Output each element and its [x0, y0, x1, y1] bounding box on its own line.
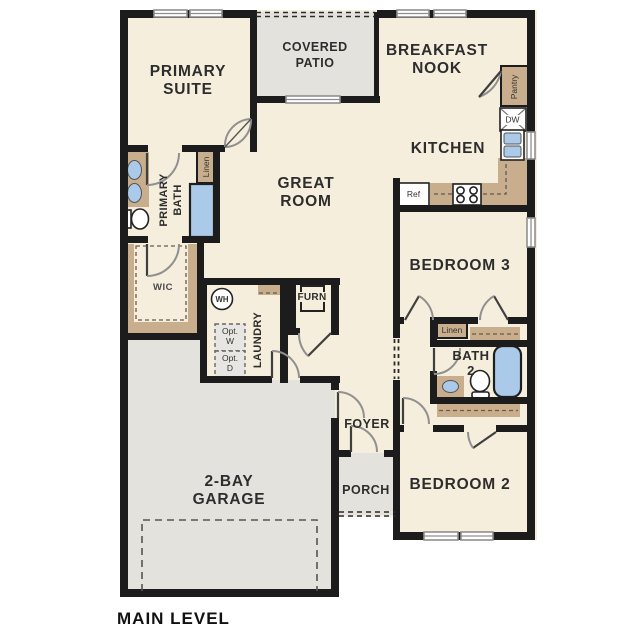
- room-label-garage: 2-BAY: [204, 473, 253, 490]
- appliance-label-opt-dryer: Opt.: [222, 353, 238, 363]
- room-label-great-room: GREAT: [277, 175, 334, 192]
- room-label-garage: GARAGE: [193, 491, 266, 508]
- toilet-bowl-icon: [132, 209, 149, 229]
- room-label-breakfast-nook: BREAKFAST: [386, 42, 488, 59]
- room-label-foyer: FOYER: [344, 417, 390, 431]
- room-label-covered-patio: COVERED: [282, 40, 347, 54]
- room-label-wic: WIC: [153, 282, 173, 293]
- room-label-great-room: ROOM: [280, 193, 331, 210]
- room-label-breakfast-nook: NOOK: [412, 60, 462, 77]
- room-label-laundry: LAUNDRY: [252, 312, 264, 368]
- closet-label-linen-primary: Linen: [201, 156, 211, 177]
- burner-icon: [457, 195, 464, 202]
- room-label-bedroom-3: BEDROOM 3: [409, 257, 510, 274]
- floor-plan-canvas: PRIMARY SUITE COVERED PATIO BREAKFAST NO…: [0, 0, 640, 640]
- room-label-porch: PORCH: [342, 483, 390, 497]
- shower-icon: [190, 184, 214, 237]
- room-label-primary-bath: PRIMARY: [158, 173, 170, 226]
- bath2-sink-icon: [443, 381, 459, 393]
- appliance-label-opt-dryer: D: [227, 363, 233, 373]
- room-label-covered-patio: PATIO: [296, 56, 335, 70]
- closet-label-pantry: Pantry: [509, 74, 519, 99]
- vanity-sink-icon: [128, 161, 142, 180]
- room-label-primary-bath: BATH: [172, 184, 184, 215]
- room-label-primary-suite: SUITE: [163, 81, 213, 98]
- appliance-label-opt-washer: Opt.: [222, 326, 238, 336]
- room-label-bedroom-2: BEDROOM 2: [409, 476, 510, 493]
- room-label-kitchen: KITCHEN: [411, 140, 486, 157]
- burner-icon: [457, 187, 464, 194]
- room-label-bath-2: BATH: [452, 348, 489, 363]
- room-label-primary-suite: PRIMARY: [150, 63, 227, 80]
- plan-title: MAIN LEVEL: [117, 609, 230, 628]
- exterior-cutout: [339, 517, 397, 607]
- burner-icon: [470, 187, 477, 194]
- appliance-label-wh: WH: [216, 295, 229, 304]
- appliance-label-ref: Ref: [407, 189, 421, 199]
- appliance-label-opt-washer: W: [226, 336, 234, 346]
- bathtub-icon: [494, 346, 521, 397]
- kitchen-sink-basin: [504, 133, 521, 144]
- appliance-label-dw: DW: [505, 115, 519, 125]
- closet-label-linen-hall: Linen: [442, 325, 463, 335]
- room-label-bath-2: 2: [467, 363, 475, 378]
- vanity-sink-icon: [128, 184, 142, 203]
- kitchen-sink-basin: [504, 146, 521, 157]
- burner-icon: [470, 195, 477, 202]
- room-label-furn: FURN: [298, 292, 327, 303]
